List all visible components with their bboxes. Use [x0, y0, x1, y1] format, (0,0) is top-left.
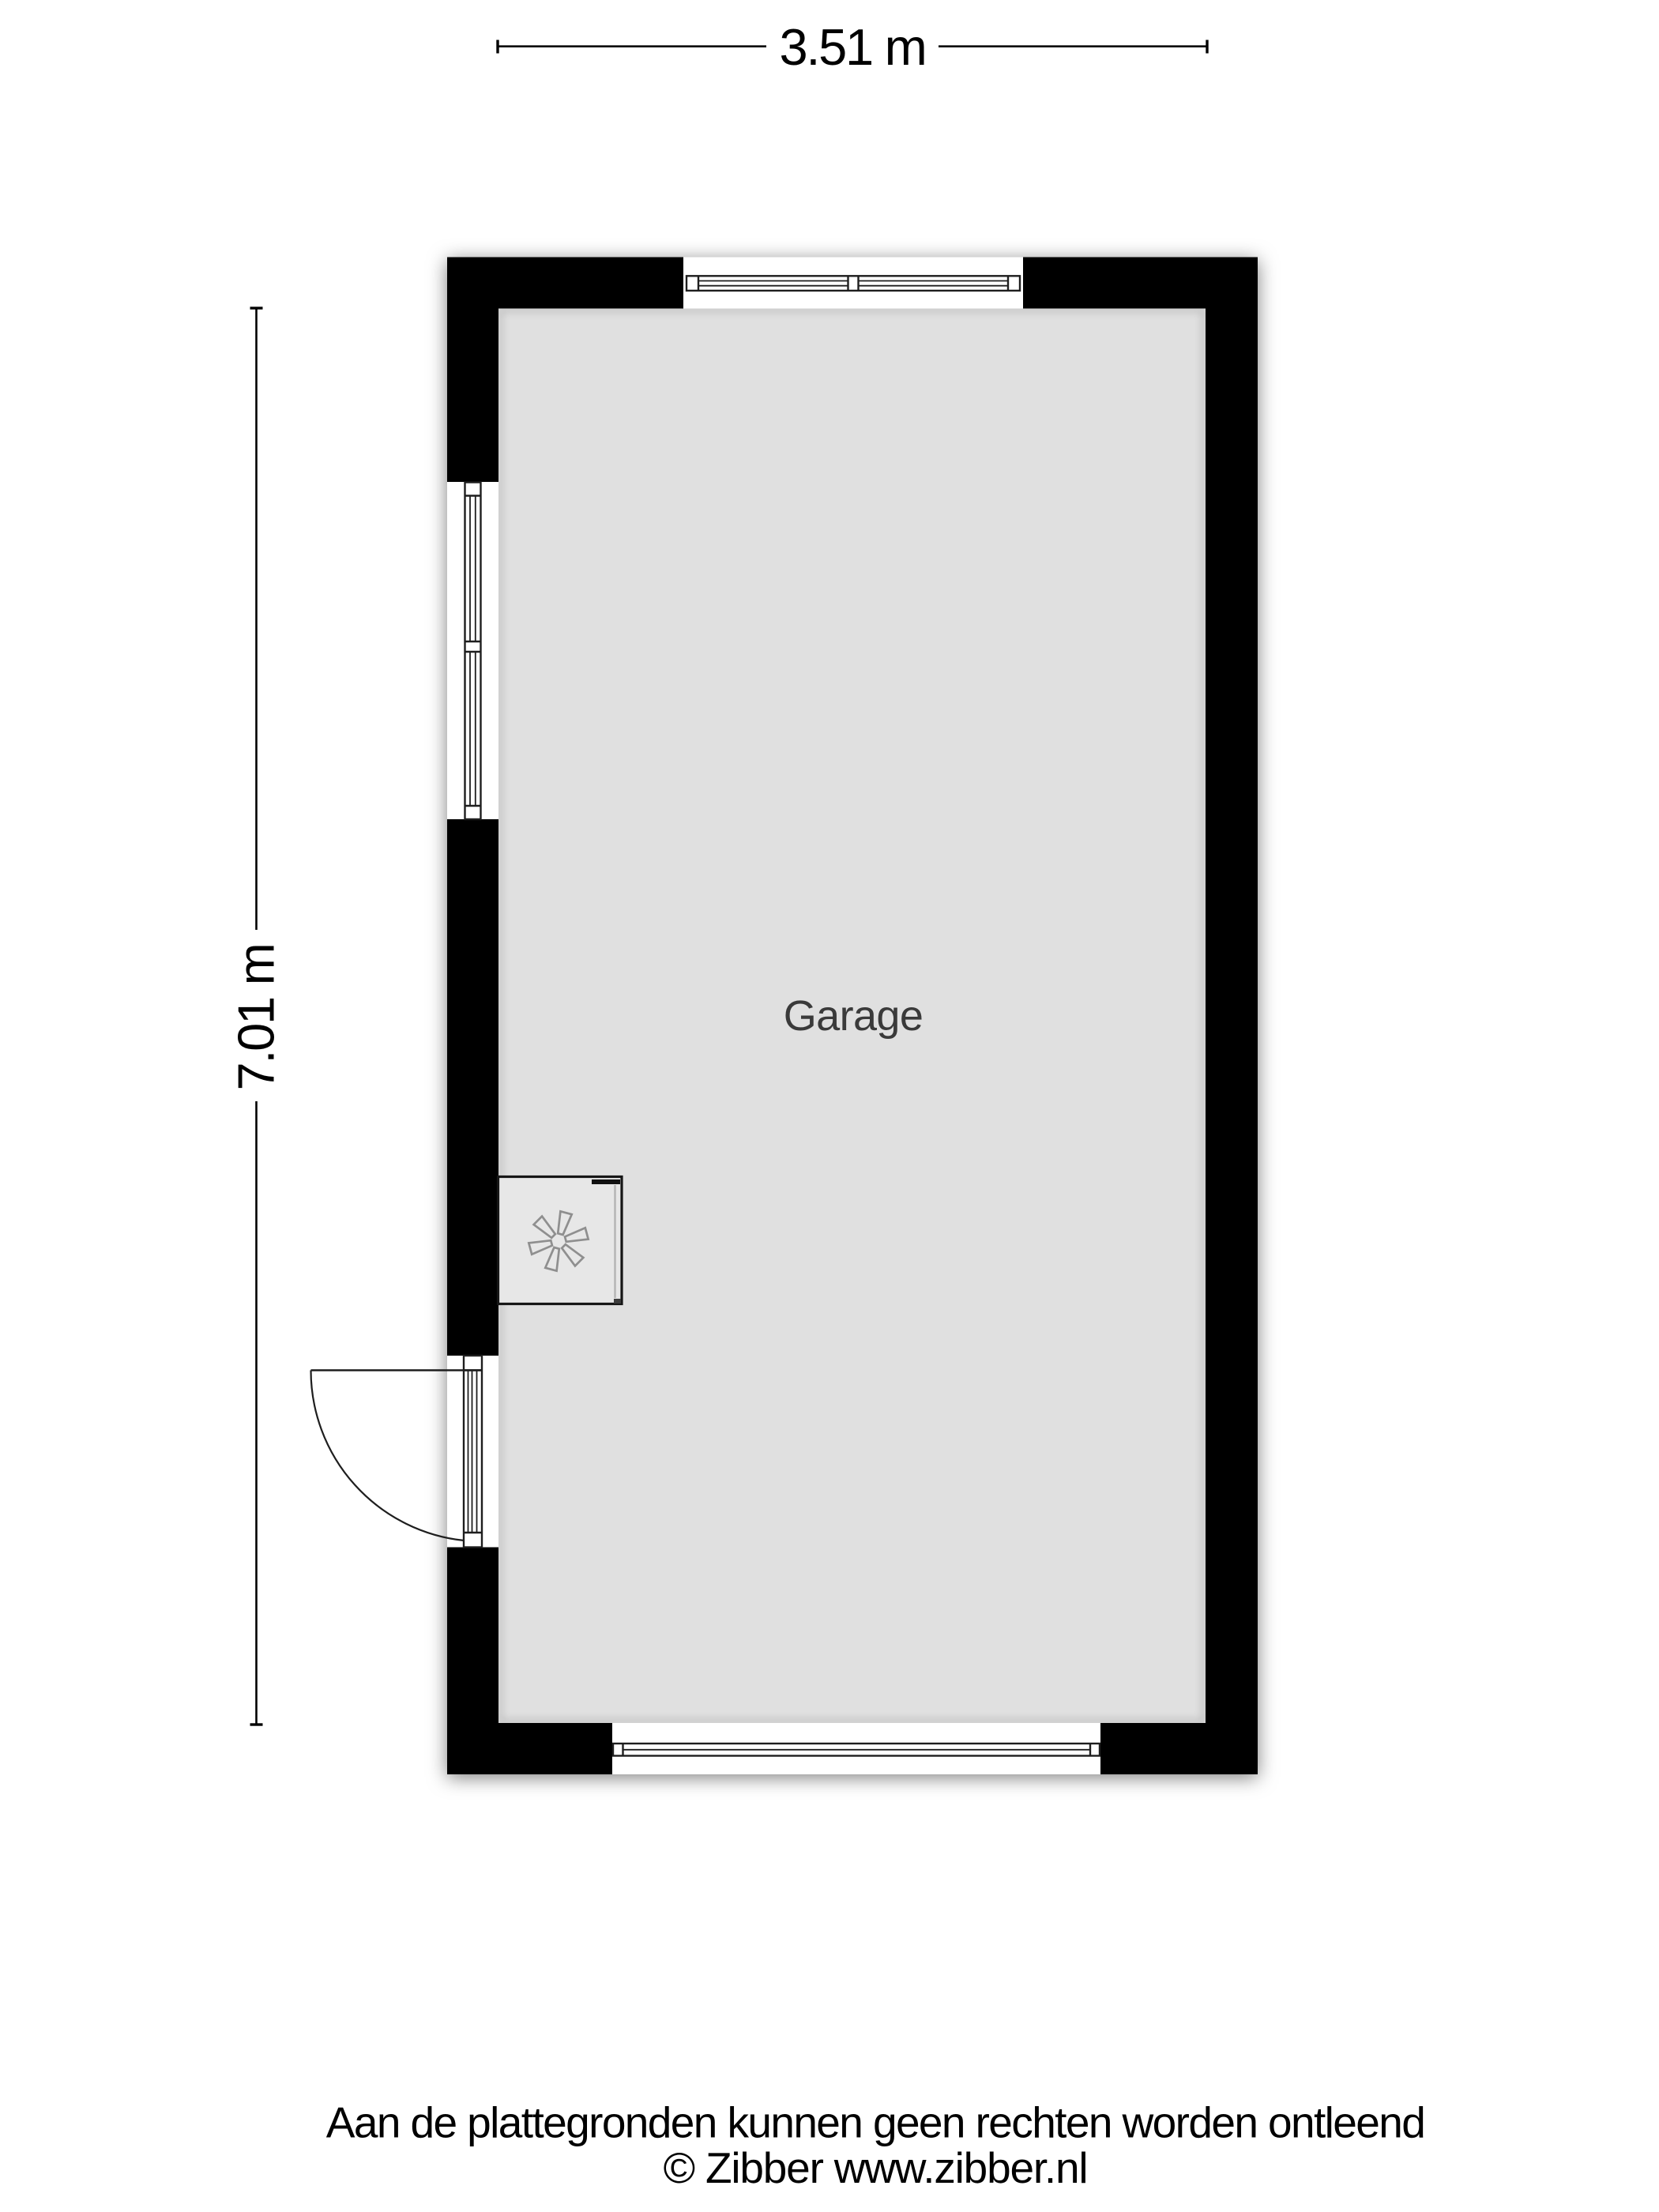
svg-text:3.51 m: 3.51 m [780, 18, 926, 76]
svg-text:© Zibber www.zibber.nl: © Zibber www.zibber.nl [664, 2143, 1088, 2192]
svg-text:Garage: Garage [784, 992, 924, 1040]
svg-text:Aan de plattegronden kunnen ge: Aan de plattegronden kunnen geen rechten… [326, 2098, 1424, 2147]
svg-text:7.01 m: 7.01 m [228, 945, 285, 1091]
